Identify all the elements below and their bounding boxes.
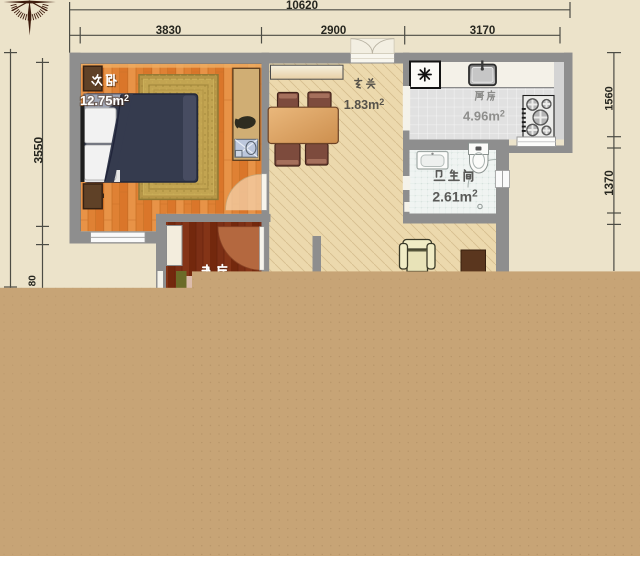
svg-text:12.75m2: 12.75m2 — [80, 93, 129, 108]
svg-text:4.96m2: 4.96m2 — [463, 108, 505, 123]
svg-text:10620: 10620 — [286, 0, 318, 12]
svg-text:3170: 3170 — [470, 25, 496, 37]
svg-text:80: 80 — [27, 275, 38, 287]
svg-text:2.61m2: 2.61m2 — [432, 189, 478, 205]
svg-text:1370: 1370 — [604, 170, 616, 196]
svg-text:1.83m2: 1.83m2 — [344, 97, 384, 112]
svg-text:2900: 2900 — [321, 25, 347, 37]
svg-text:3830: 3830 — [156, 25, 182, 37]
svg-text:1560: 1560 — [604, 86, 616, 110]
svg-text:3550: 3550 — [32, 137, 46, 164]
